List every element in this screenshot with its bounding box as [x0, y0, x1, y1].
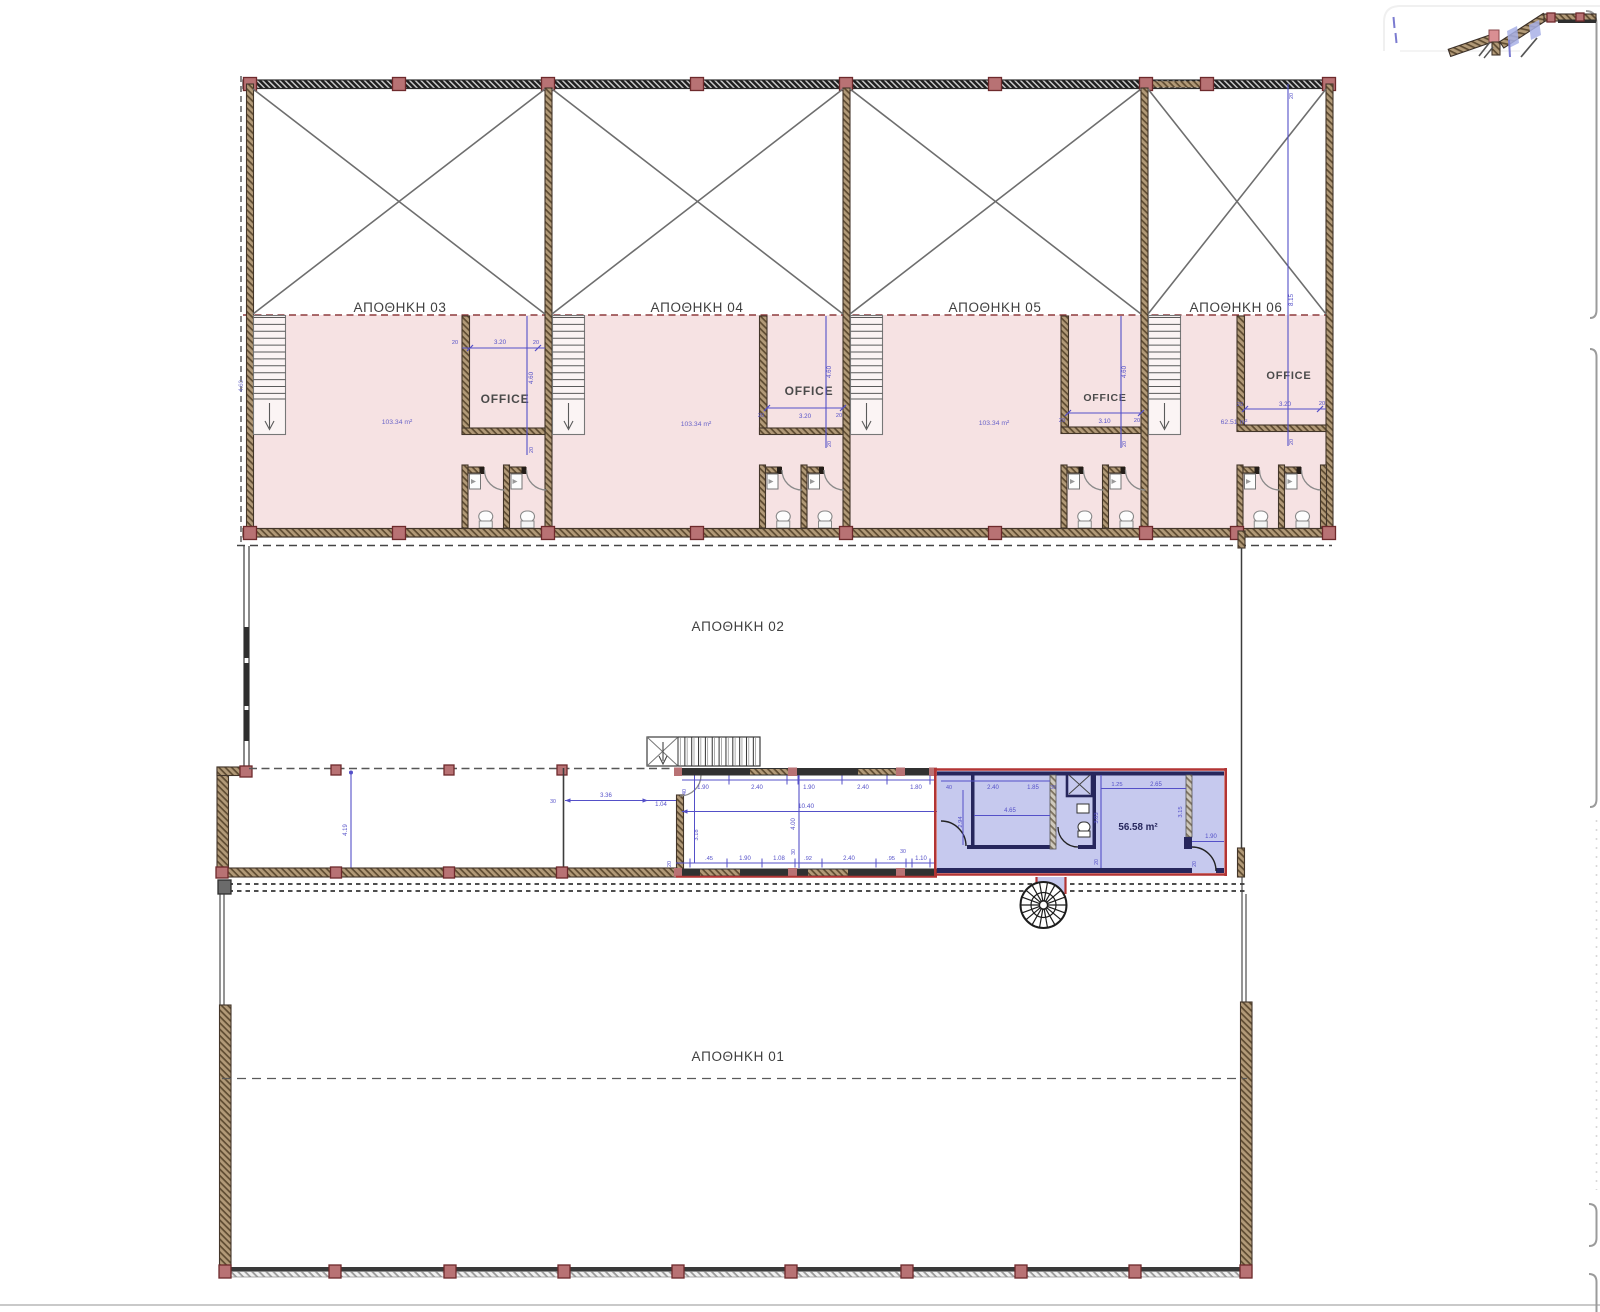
svg-text:20: 20 [667, 861, 673, 867]
svg-text:1.90: 1.90 [697, 785, 709, 791]
svg-text:8.15: 8.15 [1288, 293, 1295, 306]
svg-text:.95: .95 [887, 856, 895, 862]
svg-text:4.60: 4.60 [1121, 365, 1128, 378]
svg-text:56.58 m²: 56.58 m² [1118, 822, 1158, 833]
svg-text:4.19: 4.19 [343, 824, 349, 836]
svg-text:3.20: 3.20 [494, 339, 507, 346]
svg-text:20: 20 [529, 447, 535, 453]
svg-text:1.04: 1.04 [655, 802, 667, 808]
svg-text:4.60: 4.60 [826, 365, 833, 378]
svg-text:40: 40 [946, 785, 952, 791]
svg-text:30: 30 [550, 799, 556, 805]
svg-text:2.40: 2.40 [987, 785, 999, 791]
svg-text:4.60: 4.60 [528, 371, 535, 384]
svg-text:30: 30 [791, 849, 797, 855]
svg-text:1.08: 1.08 [773, 856, 785, 862]
svg-text:OFFICE: OFFICE [1083, 392, 1126, 404]
svg-text:4.60: 4.60 [239, 380, 245, 392]
svg-text:3.03: 3.03 [1094, 812, 1100, 823]
svg-text:OFFICE: OFFICE [481, 392, 530, 406]
svg-text:20: 20 [452, 340, 458, 346]
svg-text:4.65: 4.65 [1004, 808, 1016, 814]
svg-text:2.40: 2.40 [751, 785, 763, 791]
svg-text:3.20: 3.20 [1279, 401, 1292, 408]
svg-text:103.34 m²: 103.34 m² [681, 421, 712, 428]
svg-text:20: 20 [1289, 439, 1295, 445]
svg-text:20: 20 [1192, 861, 1198, 867]
svg-text:3.20: 3.20 [799, 413, 812, 420]
svg-text:20: 20 [758, 413, 764, 419]
svg-text:1.85: 1.85 [1027, 785, 1039, 791]
svg-text:2.40: 2.40 [843, 856, 855, 862]
svg-text:10.40: 10.40 [798, 803, 814, 810]
svg-text:3.18: 3.18 [694, 829, 700, 840]
svg-text:1.90: 1.90 [739, 856, 751, 862]
svg-text:.45: .45 [705, 856, 713, 862]
svg-text:20: 20 [1134, 418, 1140, 424]
svg-text:62.51 m²: 62.51 m² [1221, 419, 1249, 426]
svg-text:20: 20 [827, 441, 833, 447]
svg-text:1.80: 1.80 [910, 785, 922, 791]
svg-text:1.25: 1.25 [1111, 782, 1122, 788]
svg-text:103.34 m²: 103.34 m² [382, 419, 413, 426]
svg-text:2.40: 2.40 [857, 785, 869, 791]
svg-text:ΑΠΟΘΗΚΗ 02: ΑΠΟΘΗΚΗ 02 [691, 619, 784, 634]
svg-text:3.10: 3.10 [1098, 418, 1111, 425]
svg-text:3.15: 3.15 [1178, 806, 1184, 817]
svg-text:30: 30 [1050, 785, 1056, 791]
svg-text:ΑΠΟΘΗΚΗ 03: ΑΠΟΘΗΚΗ 03 [353, 300, 446, 315]
svg-text:20: 20 [1059, 418, 1065, 424]
svg-text:20: 20 [1094, 859, 1100, 865]
svg-text:1.90: 1.90 [1205, 834, 1217, 840]
svg-text:1.90: 1.90 [803, 785, 815, 791]
svg-text:40: 40 [682, 789, 688, 795]
svg-text:30: 30 [900, 849, 906, 855]
svg-text:20: 20 [1319, 401, 1325, 407]
svg-text:103.34 m²: 103.34 m² [979, 420, 1010, 427]
svg-text:3.36: 3.36 [600, 793, 612, 799]
svg-text:ΑΠΟΘΗΚΗ 01: ΑΠΟΘΗΚΗ 01 [691, 1049, 784, 1064]
svg-text:.92: .92 [804, 856, 812, 862]
svg-text:20: 20 [1122, 441, 1128, 447]
svg-text:ΑΠΟΘΗΚΗ 06: ΑΠΟΘΗΚΗ 06 [1189, 300, 1282, 315]
svg-text:20: 20 [1289, 93, 1295, 99]
svg-text:OFFICE: OFFICE [1266, 370, 1311, 382]
svg-text:20: 20 [836, 413, 842, 419]
svg-text:20: 20 [533, 340, 539, 346]
svg-text:ΑΠΟΘΗΚΗ 05: ΑΠΟΘΗΚΗ 05 [948, 300, 1041, 315]
svg-text:4.00: 4.00 [791, 818, 797, 830]
svg-text:1.10: 1.10 [915, 856, 927, 862]
svg-text:2.65: 2.65 [1150, 782, 1162, 788]
svg-text:ΑΠΟΘΗΚΗ 04: ΑΠΟΘΗΚΗ 04 [650, 300, 743, 315]
svg-text:20: 20 [1237, 402, 1243, 408]
